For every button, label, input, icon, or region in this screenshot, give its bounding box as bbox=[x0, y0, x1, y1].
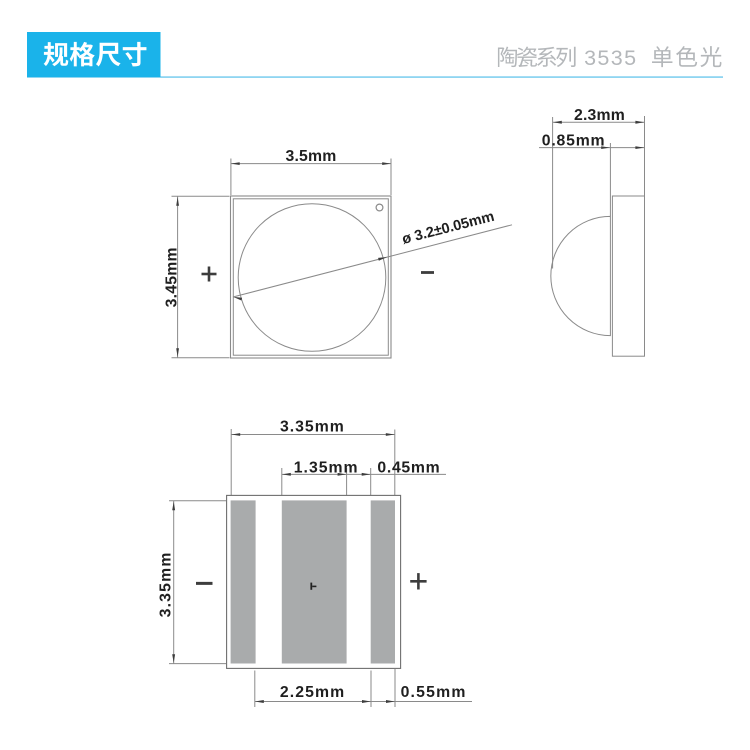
svg-text:ø 3.2±0.05mm: ø 3.2±0.05mm bbox=[400, 209, 496, 248]
svg-text:0.55mm: 0.55mm bbox=[401, 684, 467, 701]
svg-text:3.35mm: 3.35mm bbox=[157, 551, 174, 617]
svg-text:3535: 3535 bbox=[584, 46, 637, 70]
svg-text:3.35mm: 3.35mm bbox=[280, 418, 345, 435]
svg-text:2.25mm: 2.25mm bbox=[280, 684, 345, 701]
svg-text:2.3mm: 2.3mm bbox=[574, 107, 625, 124]
svg-text:3.5mm: 3.5mm bbox=[285, 148, 336, 165]
svg-text:0.45mm: 0.45mm bbox=[377, 460, 440, 477]
svg-text:1.35mm: 1.35mm bbox=[294, 460, 359, 477]
svg-text:3.45mm: 3.45mm bbox=[164, 247, 181, 307]
svg-text:0.85mm: 0.85mm bbox=[542, 133, 606, 150]
